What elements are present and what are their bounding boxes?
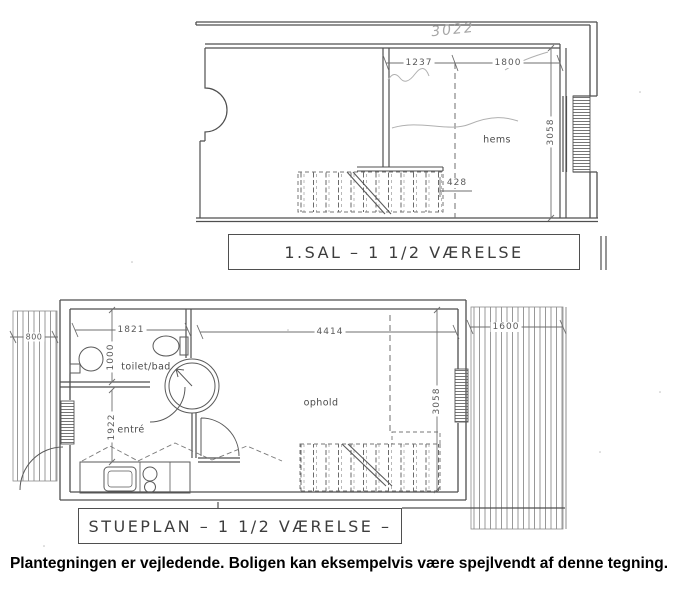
hems-railing: [357, 167, 443, 171]
shower-door-arrow: [176, 369, 192, 386]
stove-burner: [145, 482, 156, 493]
floorplan-scan-page: 3022 1237 1800 3058 428 hems 1821 1000 1…: [0, 0, 678, 603]
upper-plan-title-box: 1.SAL – 1 1/2 VÆRELSE: [228, 234, 580, 270]
room-label-bath: toilet/bad: [121, 362, 170, 373]
room-label-living: ophold: [304, 398, 339, 409]
upper-staircase: [298, 172, 443, 214]
kitchen-sink: [104, 467, 136, 491]
lower-plan-title-box: STUEPLAN – 1 1/2 VÆRELSE –: [78, 508, 402, 544]
toilet-bowl: [153, 336, 179, 356]
room-label-hems: hems: [483, 135, 511, 146]
sink-tap: [70, 364, 80, 373]
dim-deck-right: 1600: [491, 322, 522, 332]
dim-width-right: 1800: [493, 58, 524, 68]
dim-deck-left: 800: [24, 333, 45, 342]
stove-burner: [143, 467, 157, 481]
toilet-tank: [180, 337, 188, 355]
dim-stair-landing: 428: [445, 178, 469, 188]
lower-plan-title: STUEPLAN – 1 1/2 VÆRELSE –: [89, 517, 392, 536]
left-wall-window-hatch: [61, 401, 74, 444]
upper-title-edge-marks: [601, 236, 606, 270]
page-caption: Plantegningen er vejledende. Boligen kan…: [0, 555, 678, 573]
upper-plan-title: 1.SAL – 1 1/2 VÆRELSE: [284, 243, 523, 262]
dim-bath-width: 1821: [116, 325, 147, 335]
bathroom-fixtures: [70, 336, 219, 413]
kitchen-counter: [80, 462, 190, 493]
dim-bath-depth: 1000: [106, 342, 116, 373]
dim-living-depth: 3058: [432, 386, 442, 417]
sink-basin: [79, 347, 103, 371]
dim-hall-depth: 1922: [107, 412, 117, 443]
dim-living-width: 4414: [315, 327, 346, 337]
room-label-hall: entré: [117, 425, 144, 436]
lower-staircase: [300, 432, 440, 491]
deck-right: [471, 307, 563, 529]
upper-window-hatch: [573, 96, 590, 172]
dim-upper-depth: 3058: [546, 117, 556, 148]
right-wall-window-hatch: [455, 369, 468, 422]
kitchen-fixtures: [80, 443, 282, 493]
dim-width-left: 1237: [404, 58, 435, 68]
